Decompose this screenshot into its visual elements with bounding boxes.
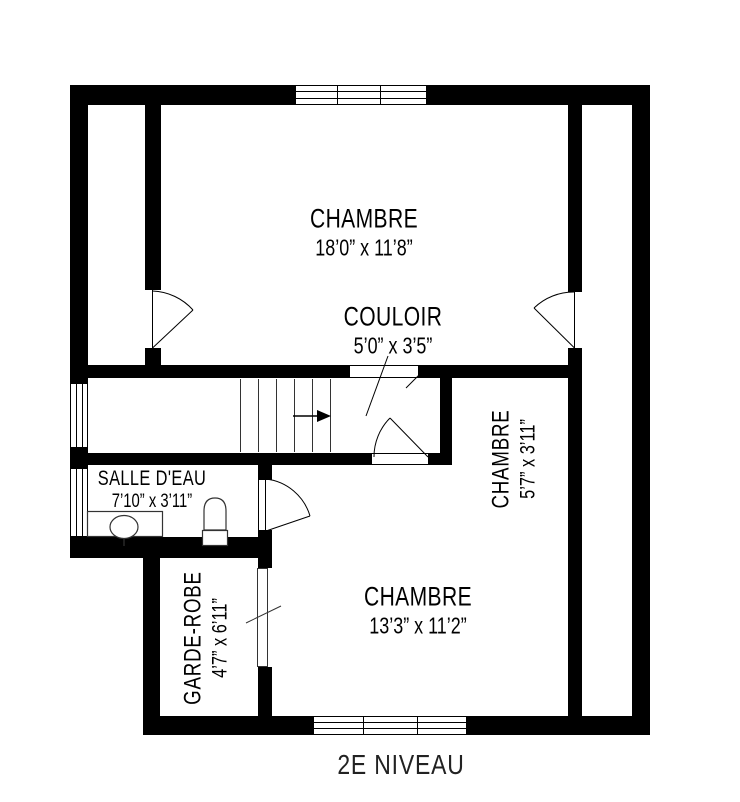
plan-title: 2E NIVEAU: [337, 749, 464, 781]
wall-sde-right-bottom: [258, 530, 272, 558]
wall-tr-inner-lower: [568, 348, 582, 716]
room-dims: 4’7” x 6’11”: [210, 571, 232, 705]
wall-sde-right-top: [258, 465, 272, 480]
wall-left-upper: [70, 85, 88, 383]
wall-garde-robe-right-bottom: [258, 667, 272, 716]
room-name: CHAMBRE: [488, 409, 513, 508]
room-label-chambre-bottom: CHAMBRE 13’3” x 11’2”: [364, 582, 472, 637]
room-label-couloir: COULOIR 5’0” x 3’5”: [344, 302, 443, 357]
wall-bottom-left: [143, 716, 313, 735]
floor-plan-drawing: [0, 0, 740, 802]
room-name: CHAMBRE: [364, 582, 472, 610]
door-top-left-icon: [153, 290, 194, 348]
wall-top-left: [70, 85, 295, 105]
wall-garde-robe-right-top: [258, 558, 272, 568]
room-dims: 7’10” x 3’11”: [98, 492, 206, 512]
bottom-window-icon: [313, 716, 467, 735]
door-couloir-icon: [372, 418, 428, 465]
wall-garde-robe-left: [143, 558, 160, 716]
door-top-right-icon: [534, 292, 575, 348]
room-label-salle-deau: SALLE D'EAU 7’10” x 3’11”: [98, 468, 206, 512]
room-name: CHAMBRE: [310, 204, 418, 232]
wall-tr-inner-upper: [568, 105, 582, 292]
wall-tl-inner-upper: [145, 105, 161, 290]
left-window-lower-icon: [71, 468, 88, 537]
room-dims: 18’0” x 11’8”: [310, 236, 418, 260]
room-label-chambre-right: CHAMBRE 5’7” x 3’11”: [488, 409, 539, 508]
room-dims: 5’0” x 3’5”: [344, 334, 443, 358]
door-salle-deau-icon: [259, 479, 311, 531]
wall-couloir-corner: [428, 453, 452, 465]
floor-plan: CHAMBRE 18’0” x 11’8” COULOIR 5’0” x 3’5…: [0, 0, 740, 802]
room-label-chambre-top: CHAMBRE 18’0” x 11’8”: [310, 204, 418, 259]
wall-mid-horizontal-left: [70, 365, 350, 378]
room-label-garde-robe: GARDE-ROBE 4’7” x 6’11”: [180, 571, 231, 705]
wall-top-right: [427, 85, 650, 105]
wall-couloir-stub: [440, 378, 452, 453]
door-garde-robe-icon: [246, 569, 281, 667]
room-name: GARDE-ROBE: [180, 571, 205, 705]
wall-stairhall-south: [70, 453, 372, 465]
wall-mid-horizontal-right: [418, 365, 568, 378]
toilet-icon: [203, 498, 228, 546]
room-dims: 5’7” x 3’11”: [518, 409, 540, 508]
wall-right-outer: [632, 85, 650, 735]
top-window-icon: [295, 85, 427, 105]
left-window-upper-icon: [71, 383, 88, 448]
room-name: SALLE D'EAU: [98, 468, 206, 490]
walls: [70, 85, 650, 735]
wall-bottom-right: [467, 716, 650, 735]
room-name: COULOIR: [344, 302, 443, 330]
wall-sde-bottom: [70, 537, 272, 558]
room-dims: 13’3” x 11’2”: [364, 614, 472, 638]
